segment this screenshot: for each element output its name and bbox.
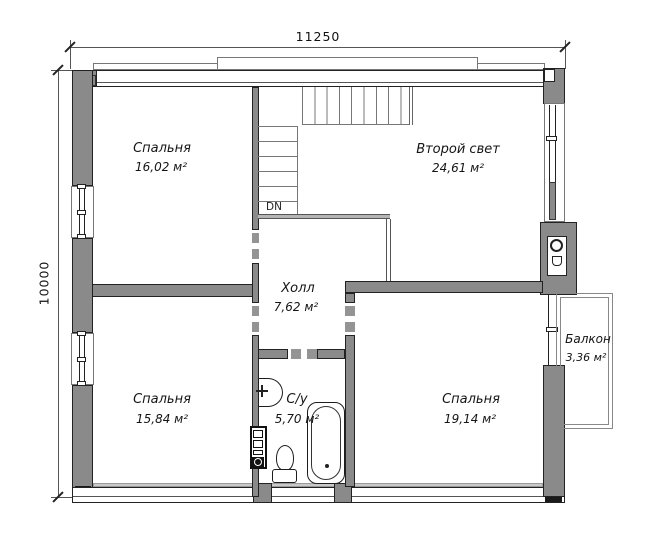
right-wall-window-panel: [549, 182, 556, 220]
bottom-wall-window-band: [72, 487, 565, 503]
room-label-balcony: Балкон: [565, 332, 611, 346]
left-wall-pier: [72, 385, 93, 497]
room-area-second-light: 24,61 м²: [432, 161, 484, 175]
window-sash-mark: [546, 136, 557, 141]
room-area-hall: 7,62 м²: [274, 300, 318, 314]
roof-overhang-line: [217, 57, 478, 70]
top-dimension-label: 11250: [296, 29, 341, 44]
bathtub-drain-icon: [325, 464, 329, 468]
room-area-bedroom-left: 15,84 м²: [136, 412, 188, 426]
bathroom-top-wall: [258, 349, 288, 359]
floor-plan: 11250 10000: [0, 0, 656, 548]
roof-overhang-line: [477, 63, 545, 70]
flue-circle-icon: [550, 239, 563, 252]
left-wall-pier: [72, 70, 93, 186]
top-wall-glazing-line: [96, 82, 543, 83]
toilet-bowl-icon: [276, 445, 294, 471]
roof-overhang-line: [93, 63, 218, 70]
toilet-tank-icon: [272, 469, 297, 483]
left-dimension-label: 10000: [37, 261, 52, 306]
flue-foot-icon: [552, 256, 562, 266]
washer-stack-cell: [253, 440, 263, 448]
room-area-bathroom: 5,70 м²: [275, 412, 319, 426]
room-label-hall: Холл: [281, 281, 314, 296]
room-label-bedroom-right: Спальня: [442, 392, 500, 407]
stairs-down-label: DN: [266, 201, 282, 213]
bottom-wall-glazing-line: [73, 496, 564, 497]
top-wall-window-band: [72, 70, 565, 87]
corner-column-notch: [544, 69, 555, 82]
stairwell-railing: [386, 219, 391, 281]
stairwell-opening-edge: [258, 214, 390, 219]
window-sash-mark: [77, 331, 86, 336]
room-label-second-light: Второй свет: [416, 142, 500, 157]
hall-wall-segment: [252, 263, 259, 303]
washer-stack-cell: [253, 450, 263, 455]
room-label-bathroom: С/у: [286, 392, 307, 407]
second-light-bedroom-wall: [345, 281, 543, 293]
room-area-bedroom-top: 16,02 м²: [135, 160, 187, 174]
sink-faucet-icon: [256, 390, 268, 392]
door-opening-bathroom: [288, 349, 317, 359]
window-sash-mark: [77, 210, 86, 215]
bathroom-right-wall: [345, 335, 355, 487]
left-wall-pier: [72, 238, 93, 333]
washer-stack-cell: [253, 430, 263, 438]
stairs-upper-flight: [302, 87, 413, 125]
room-area-bedroom-right: 19,14 м²: [444, 412, 496, 426]
washer-drum-icon: [254, 458, 262, 466]
room-label-bedroom-top: Спальня: [133, 141, 191, 156]
window-sash-mark: [77, 184, 86, 189]
bedrooms-divider-wall: [92, 284, 253, 297]
door-opening-bedroom-top: [252, 230, 259, 263]
left-dimension-line: [58, 70, 59, 497]
stairs-edge-line: [409, 87, 413, 125]
top-dimension-line: [70, 47, 566, 48]
room-label-bedroom-left: Спальня: [133, 392, 191, 407]
room-area-balcony: 3,36 м²: [566, 351, 607, 364]
door-opening-bedroom-left: [252, 303, 259, 335]
window-sash-mark: [77, 357, 86, 362]
bathroom-left-wall: [252, 335, 259, 497]
bedroom-right-wall-stub: [345, 293, 355, 303]
bathroom-top-wall: [317, 349, 345, 359]
door-opening-bedroom-right: [345, 303, 355, 335]
